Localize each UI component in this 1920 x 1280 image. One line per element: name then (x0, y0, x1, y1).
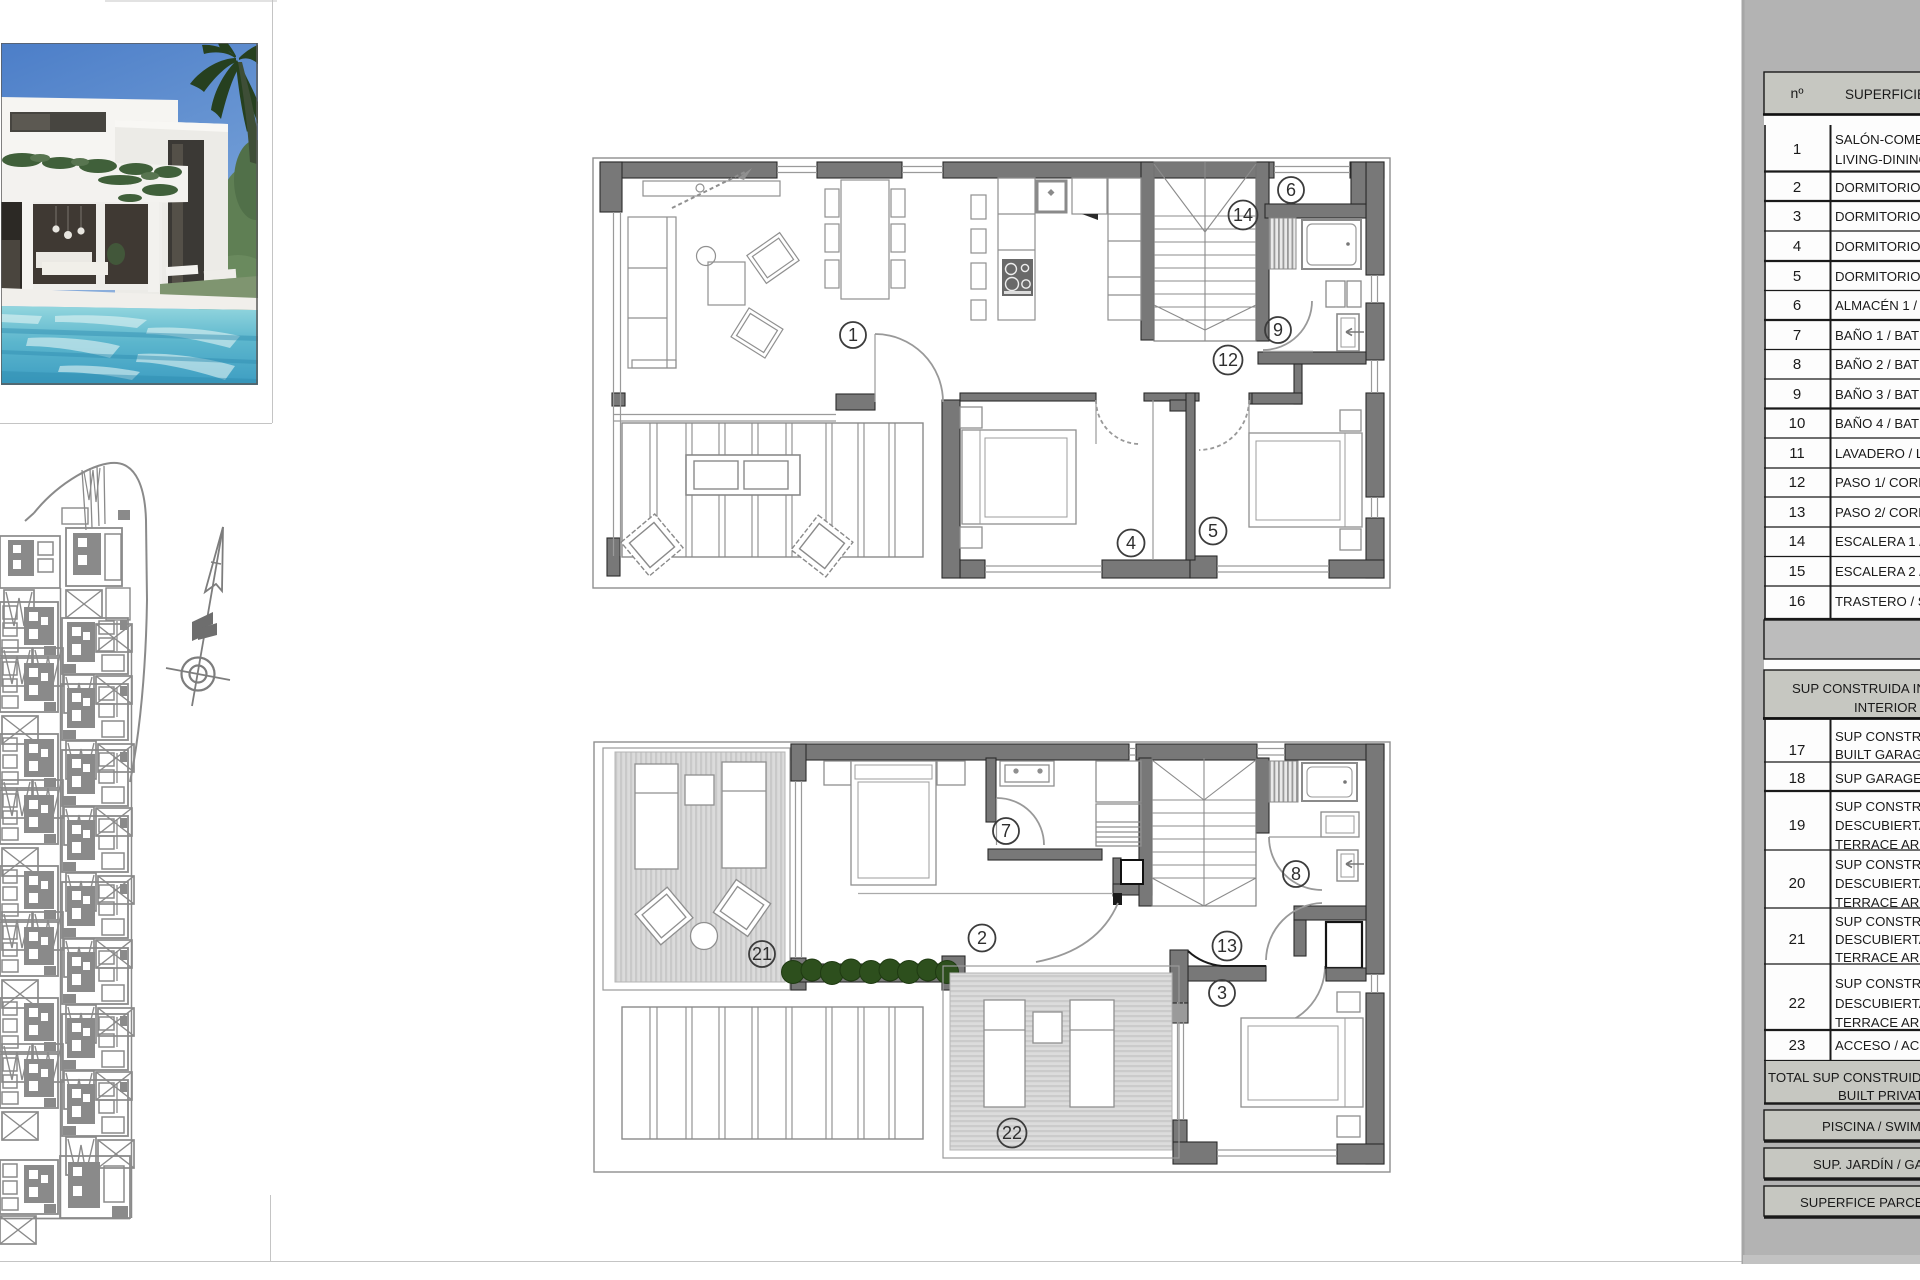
svg-text:20: 20 (1789, 875, 1806, 892)
svg-text:11: 11 (1789, 445, 1805, 462)
svg-text:SUPERFICE PARCELA: SUPERFICE PARCELA (1800, 1195, 1920, 1210)
svg-text:4: 4 (1793, 238, 1801, 255)
svg-text:BAÑO 1 / BATHROOM 1: BAÑO 1 / BATHROOM 1 (1835, 328, 1920, 343)
svg-text:DESCUBIERTA 2/ UNC: DESCUBIERTA 2/ UNC (1835, 876, 1920, 891)
svg-text:nº: nº (1791, 85, 1804, 101)
svg-text:6: 6 (1793, 297, 1801, 314)
svg-text:3: 3 (1793, 208, 1801, 225)
svg-text:ACCESO / ACCESS: ACCESO / ACCESS (1835, 1038, 1920, 1053)
svg-text:DORMITORIO 5 / BEDR: DORMITORIO 5 / BEDR (1835, 269, 1920, 284)
svg-text:SUP CONSTRUIDA TE: SUP CONSTRUIDA TE (1835, 857, 1920, 872)
svg-text:ESCALERA 1 / STAIRS 1: ESCALERA 1 / STAIRS 1 (1835, 534, 1920, 549)
svg-text:TERRACE AREA 3: TERRACE AREA 3 (1835, 950, 1920, 965)
svg-text:2: 2 (1793, 179, 1801, 196)
svg-text:BUILT PRIVATE: BUILT PRIVATE (1838, 1088, 1920, 1103)
svg-text:21: 21 (752, 944, 772, 964)
svg-text:3: 3 (1217, 983, 1227, 1003)
svg-text:14: 14 (1233, 205, 1253, 225)
svg-text:18: 18 (1789, 770, 1806, 787)
svg-text:15: 15 (1789, 563, 1806, 580)
svg-text:21: 21 (1789, 931, 1806, 948)
svg-text:DORMITORIO 3 / BEDR: DORMITORIO 3 / BEDR (1835, 209, 1920, 224)
svg-text:DESCUBIERTA 3/ UNC: DESCUBIERTA 3/ UNC (1835, 932, 1920, 947)
svg-text:PISCINA / SWIMMIN: PISCINA / SWIMMIN (1822, 1119, 1920, 1134)
svg-text:9: 9 (1793, 386, 1801, 403)
svg-text:12: 12 (1789, 474, 1806, 491)
svg-text:DESCUBIERTA 1/ UNC: DESCUBIERTA 1/ UNC (1835, 818, 1920, 833)
svg-text:13: 13 (1789, 504, 1806, 521)
svg-text:SUP GARAGE/STORAG: SUP GARAGE/STORAG (1835, 771, 1920, 786)
svg-text:5: 5 (1208, 521, 1218, 541)
svg-text:BAÑO 4 / BATHROOM 4: BAÑO 4 / BATHROOM 4 (1835, 416, 1920, 431)
svg-text:SUP CONSTRUIDA TE: SUP CONSTRUIDA TE (1835, 914, 1920, 929)
svg-text:13: 13 (1217, 936, 1237, 956)
svg-text:10: 10 (1789, 415, 1806, 432)
svg-text:1: 1 (848, 325, 858, 345)
svg-text:DESCUBIERTA 4/ UNC: DESCUBIERTA 4/ UNC (1835, 996, 1920, 1011)
svg-text:23: 23 (1789, 1037, 1806, 1054)
svg-text:16: 16 (1789, 593, 1806, 610)
svg-text:14: 14 (1789, 533, 1806, 550)
svg-text:ALMACÉN 1 / STORAGE: ALMACÉN 1 / STORAGE (1835, 298, 1920, 313)
svg-text:4: 4 (1126, 533, 1136, 553)
svg-text:2: 2 (977, 928, 987, 948)
svg-text:SUP. JARDÍN / GARD: SUP. JARDÍN / GARD (1813, 1157, 1920, 1172)
svg-text:12: 12 (1218, 350, 1238, 370)
svg-text:SUP CONSTRUIDA TE: SUP CONSTRUIDA TE (1835, 799, 1920, 814)
svg-text:8: 8 (1291, 864, 1301, 884)
svg-text:5: 5 (1793, 268, 1801, 285)
svg-text:LIVING-DINING-KITCHE: LIVING-DINING-KITCHE (1835, 152, 1920, 167)
svg-text:6: 6 (1286, 180, 1296, 200)
svg-text:17: 17 (1789, 742, 1806, 759)
svg-text:7: 7 (1001, 821, 1011, 841)
svg-text:ESCALERA 2 / STAIRS 2: ESCALERA 2 / STAIRS 2 (1835, 564, 1920, 579)
svg-text:SUP CONSTRUIDA TE: SUP CONSTRUIDA TE (1835, 976, 1920, 991)
svg-text:INTERIOR BUILT: INTERIOR BUILT (1854, 700, 1920, 715)
svg-text:TRASTERO / STORAGE: TRASTERO / STORAGE (1835, 594, 1920, 609)
svg-text:BUILT GARAGE AREA: BUILT GARAGE AREA (1835, 747, 1920, 762)
svg-text:SUP CONSTRUIDA INT: SUP CONSTRUIDA INT (1792, 681, 1920, 696)
svg-text:BAÑO 2 / BATHROOM 2: BAÑO 2 / BATHROOM 2 (1835, 357, 1920, 372)
svg-text:7: 7 (1793, 327, 1801, 344)
svg-text:9: 9 (1273, 320, 1283, 340)
svg-text:19: 19 (1789, 817, 1806, 834)
svg-text:8: 8 (1793, 356, 1801, 373)
svg-text:1: 1 (1793, 141, 1801, 158)
svg-text:DORMITORIO 4 / BEDR: DORMITORIO 4 / BEDR (1835, 239, 1920, 254)
svg-text:DORMITORIO 2 / BEDR: DORMITORIO 2 / BEDR (1835, 180, 1920, 195)
svg-text:SUPERFICIE ÚTIL / USEFUL: SUPERFICIE ÚTIL / USEFUL (1845, 87, 1920, 102)
svg-text:22: 22 (1002, 1123, 1022, 1143)
svg-text:PASO 2/ CORRIDOR 2: PASO 2/ CORRIDOR 2 (1835, 505, 1920, 520)
svg-text:PASO 1/ CORRIDOR 1: PASO 1/ CORRIDOR 1 (1835, 475, 1920, 490)
svg-text:TERRACE AREA 4: TERRACE AREA 4 (1835, 1015, 1920, 1030)
svg-text:LAVADERO / LAUNDRY: LAVADERO / LAUNDRY (1835, 446, 1920, 461)
svg-text:SUP CONSTRUIDA GA: SUP CONSTRUIDA GA (1835, 729, 1920, 744)
svg-text:BAÑO 3 / BATHROOM 3: BAÑO 3 / BATHROOM 3 (1835, 387, 1920, 402)
svg-text:22: 22 (1789, 995, 1806, 1012)
svg-text:TOTAL SUP CONSTRUIDA PR: TOTAL SUP CONSTRUIDA PR (1768, 1070, 1920, 1085)
svg-text:SALÓN-COMEDOR-COC: SALÓN-COMEDOR-COC (1835, 132, 1920, 147)
